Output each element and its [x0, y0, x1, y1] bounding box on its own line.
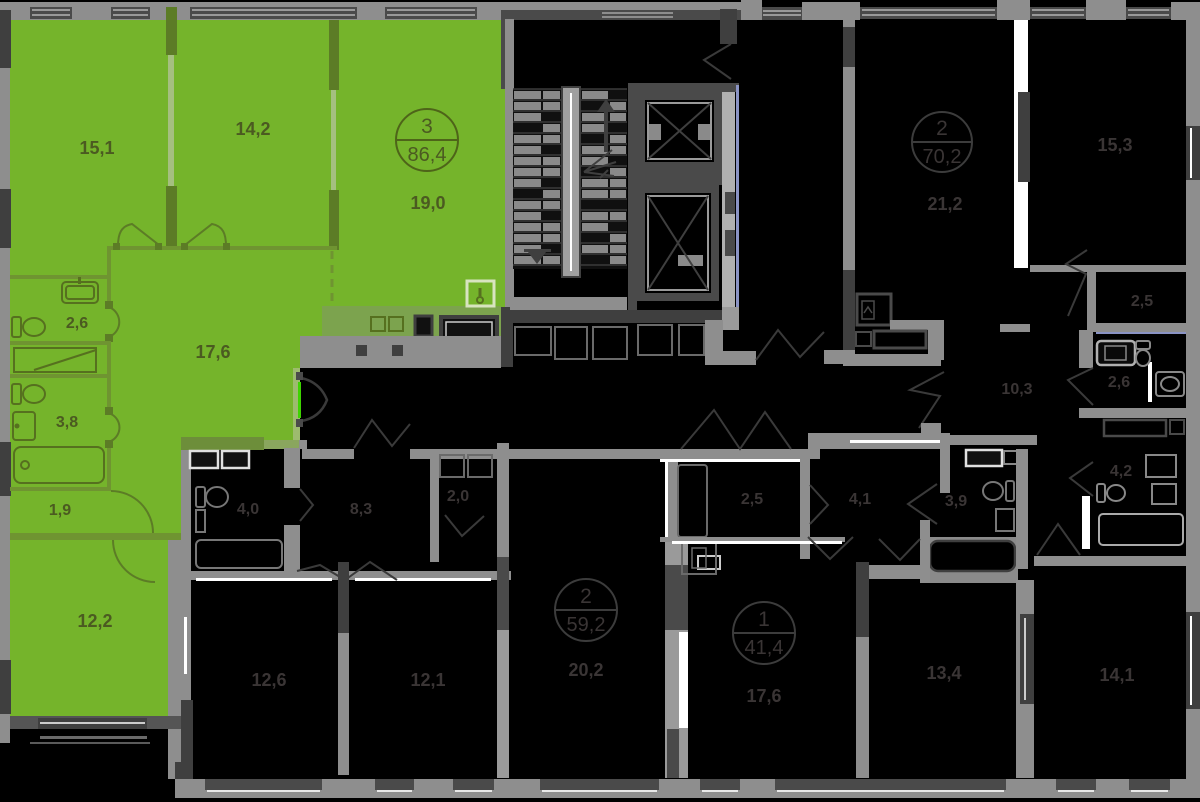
- svg-text:70,2: 70,2: [923, 146, 962, 168]
- svg-text:1,9: 1,9: [49, 502, 71, 519]
- svg-text:59,2: 59,2: [567, 614, 606, 636]
- svg-text:17,6: 17,6: [195, 342, 230, 362]
- svg-text:3,8: 3,8: [56, 414, 78, 431]
- svg-text:2,0: 2,0: [447, 488, 469, 505]
- svg-text:1: 1: [758, 608, 770, 631]
- svg-text:13,4: 13,4: [926, 663, 961, 683]
- svg-text:3,9: 3,9: [945, 493, 967, 510]
- svg-text:2,5: 2,5: [741, 491, 763, 508]
- svg-text:20,2: 20,2: [568, 660, 603, 680]
- svg-text:41,4: 41,4: [745, 637, 784, 659]
- svg-text:21,2: 21,2: [927, 194, 962, 214]
- svg-text:14,1: 14,1: [1099, 665, 1134, 685]
- svg-text:12,2: 12,2: [77, 611, 112, 631]
- svg-text:17,6: 17,6: [746, 686, 781, 706]
- svg-text:19,0: 19,0: [410, 193, 445, 213]
- svg-text:4,1: 4,1: [849, 491, 871, 508]
- svg-text:12,6: 12,6: [251, 670, 286, 690]
- svg-text:2,6: 2,6: [1108, 374, 1130, 391]
- svg-text:2,6: 2,6: [66, 315, 88, 332]
- svg-text:8,3: 8,3: [350, 501, 372, 518]
- svg-text:2: 2: [580, 585, 592, 608]
- svg-text:10,3: 10,3: [1001, 381, 1032, 398]
- svg-text:3: 3: [421, 115, 433, 138]
- svg-text:2,5: 2,5: [1131, 293, 1153, 310]
- svg-text:4,2: 4,2: [1110, 463, 1132, 480]
- svg-text:15,1: 15,1: [79, 138, 114, 158]
- svg-text:15,3: 15,3: [1097, 135, 1132, 155]
- svg-text:14,2: 14,2: [235, 119, 270, 139]
- svg-text:12,1: 12,1: [410, 670, 445, 690]
- svg-text:86,4: 86,4: [408, 144, 447, 166]
- svg-text:2: 2: [936, 117, 948, 140]
- svg-text:4,0: 4,0: [237, 501, 259, 518]
